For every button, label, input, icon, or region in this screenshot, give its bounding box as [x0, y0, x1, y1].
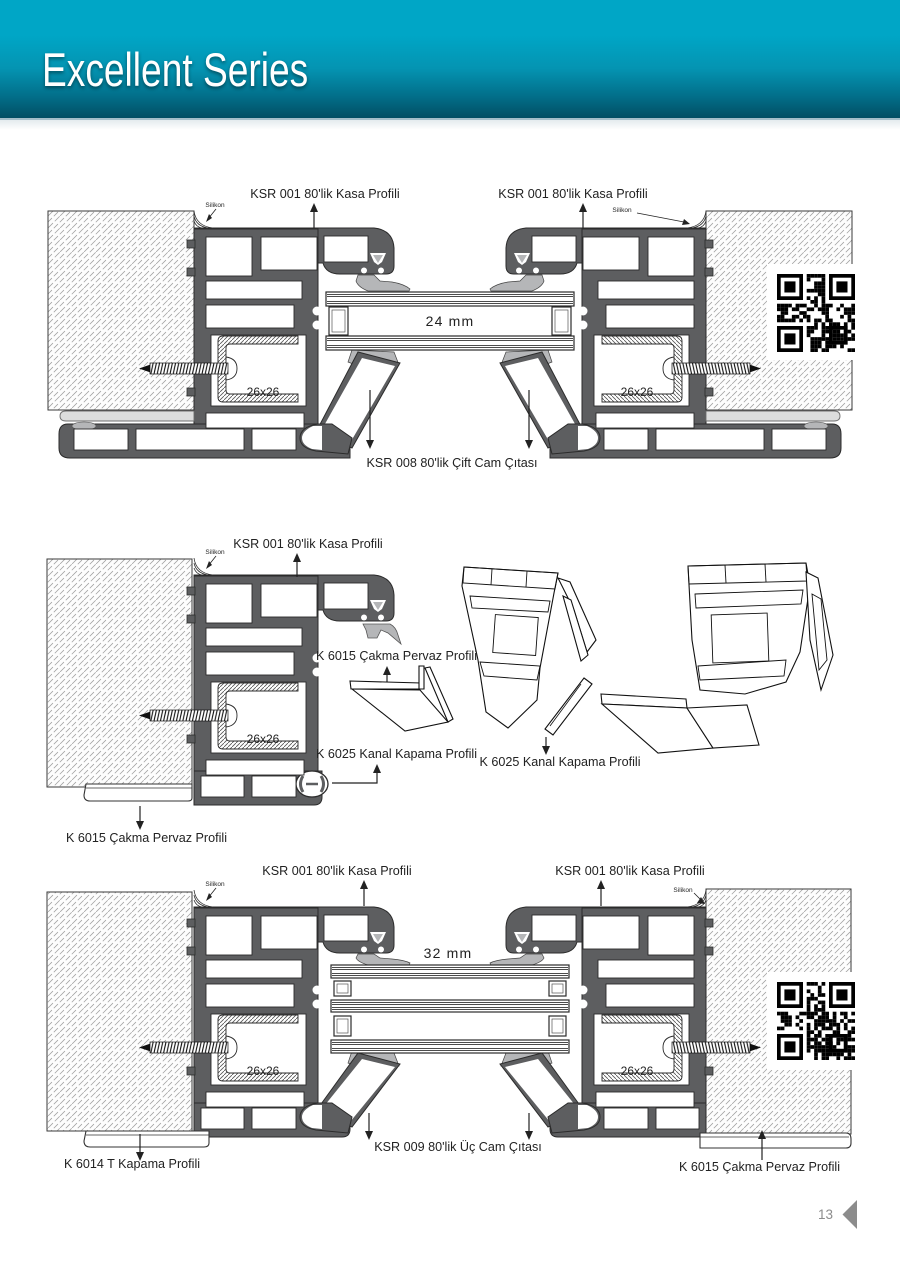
svg-text:K 6025 Kanal Kapama Profili: K 6025 Kanal Kapama Profili	[316, 747, 477, 761]
svg-text:Silikon: Silikon	[205, 881, 225, 888]
svg-text:32 mm: 32 mm	[424, 945, 473, 961]
svg-text:KSR 008 80'lik Çift Cam Çıtası: KSR 008 80'lik Çift Cam Çıtası	[366, 456, 537, 470]
svg-text:KSR 001 80'lik Kasa Profili: KSR 001 80'lik Kasa Profili	[262, 864, 411, 878]
svg-text:K 6025 Kanal Kapama Profili: K 6025 Kanal Kapama Profili	[479, 755, 640, 769]
svg-text:Silikon: Silikon	[205, 202, 225, 209]
svg-text:K 6015 Çakma Pervaz Profili: K 6015 Çakma Pervaz Profili	[679, 1160, 840, 1174]
svg-text:Silikon: Silikon	[612, 207, 632, 214]
svg-text:13: 13	[818, 1207, 833, 1222]
svg-text:K 6015 Çakma Pervaz Profili: K 6015 Çakma Pervaz Profili	[66, 831, 227, 845]
svg-text:K 6014 T Kapama Profili: K 6014 T Kapama Profili	[64, 1157, 200, 1171]
svg-text:26x26: 26x26	[621, 385, 654, 399]
svg-text:KSR 001 80'lik Kasa Profili: KSR 001 80'lik Kasa Profili	[498, 187, 647, 201]
svg-text:26x26: 26x26	[621, 1064, 654, 1078]
svg-text:Silikon: Silikon	[205, 549, 225, 556]
svg-text:KSR 001 80'lik Kasa Profili: KSR 001 80'lik Kasa Profili	[250, 187, 399, 201]
svg-text:KSR 001 80'lik Kasa Profili: KSR 001 80'lik Kasa Profili	[233, 537, 382, 551]
svg-text:26x26: 26x26	[247, 1064, 280, 1078]
svg-text:KSR 001 80'lik Kasa Profili: KSR 001 80'lik Kasa Profili	[555, 864, 704, 878]
svg-text:Silikon: Silikon	[673, 887, 693, 894]
svg-text:KSR 009 80'lik Üç Cam Çıtası: KSR 009 80'lik Üç Cam Çıtası	[374, 1140, 542, 1154]
svg-text:K 6015 Çakma Pervaz Profili: K 6015 Çakma Pervaz Profili	[316, 649, 477, 663]
svg-text:24 mm: 24 mm	[426, 313, 475, 329]
svg-text:26x26: 26x26	[247, 732, 280, 746]
svg-text:26x26: 26x26	[247, 385, 280, 399]
